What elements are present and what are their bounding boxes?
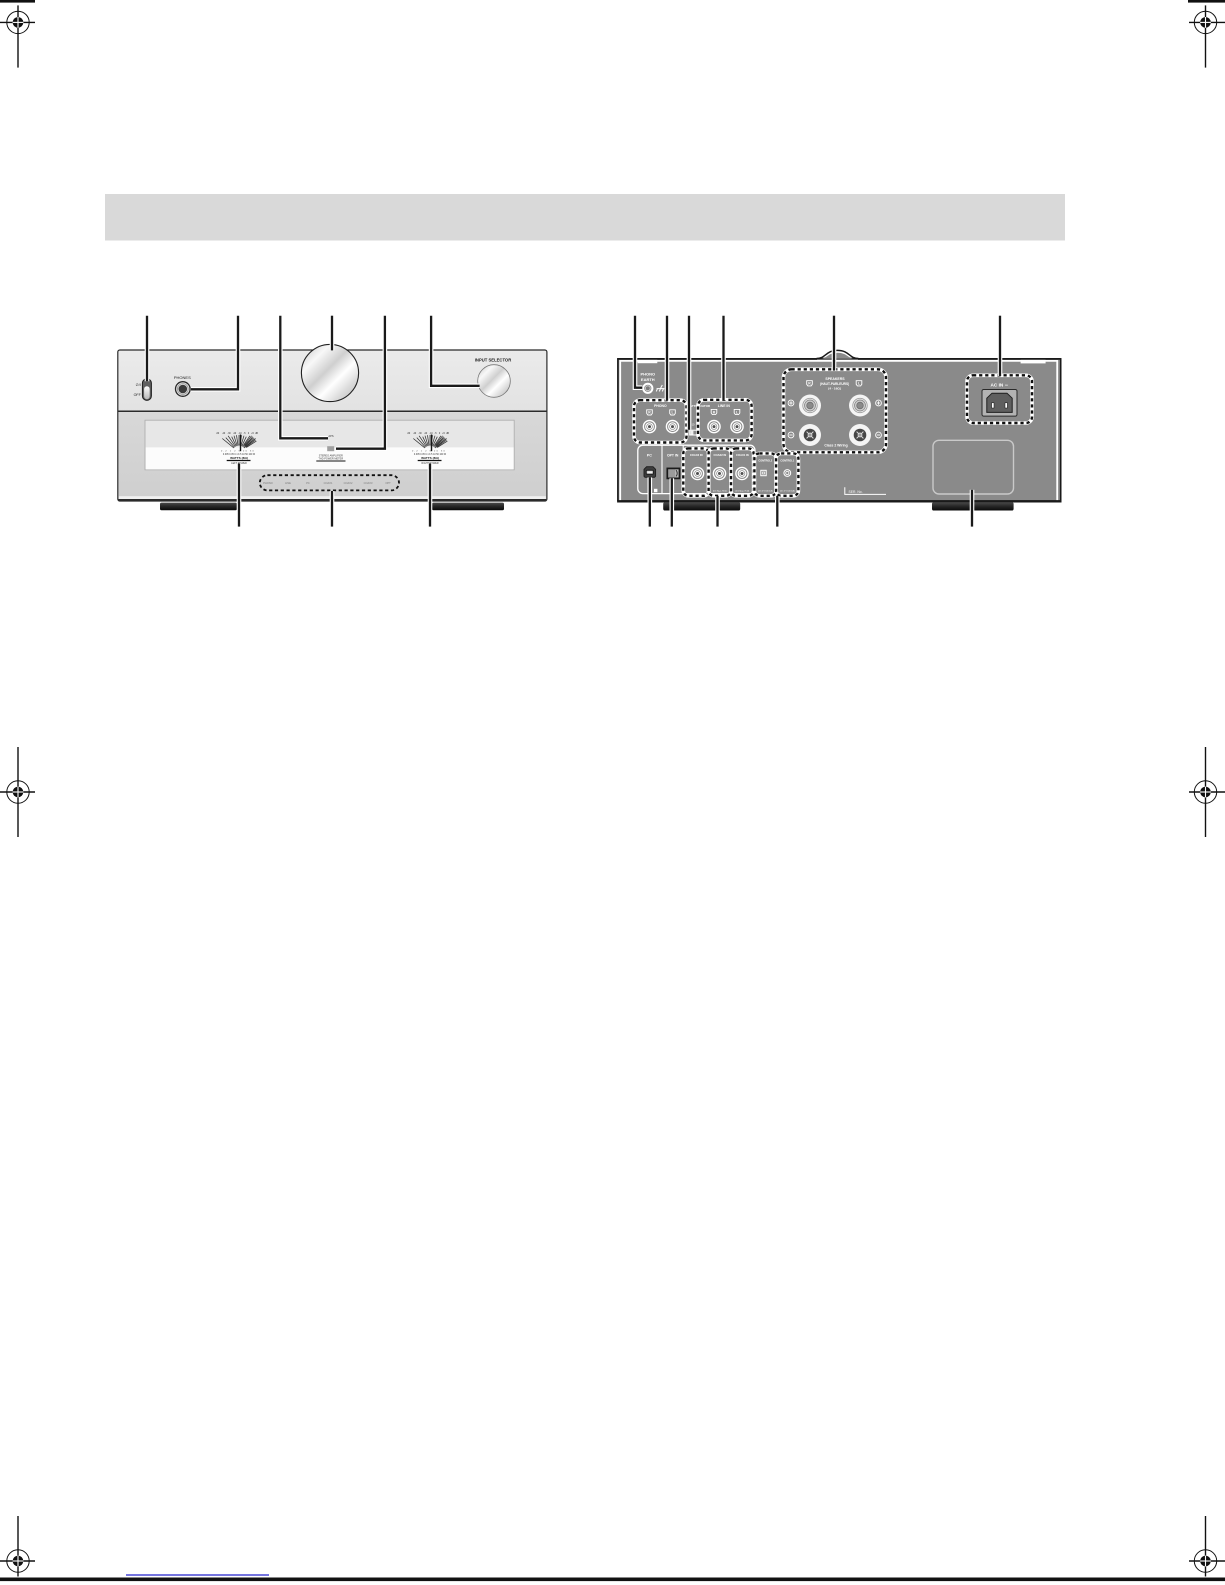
svg-text:EARTH: EARTH bbox=[641, 377, 655, 382]
svg-text:WATTS (8Ω): WATTS (8Ω) bbox=[230, 456, 248, 460]
svg-text:OFF: OFF bbox=[134, 393, 142, 397]
svg-text:WATTS (8Ω): WATTS (8Ω) bbox=[421, 456, 439, 460]
svg-text:[4 - 16Ω]: [4 - 16Ω] bbox=[828, 386, 840, 390]
svg-text:ATTENUATOR: ATTENUATOR bbox=[690, 404, 711, 408]
svg-text:0.2 1 2 5 20 50: 0.2 1 2 5 20 50 bbox=[221, 450, 255, 452]
svg-text:(0.5 Vp-p, 75 Ω): (0.5 Vp-p, 75 Ω) bbox=[736, 491, 750, 493]
svg-text:L: L bbox=[671, 411, 673, 415]
svg-text:PHONO: PHONO bbox=[640, 372, 655, 377]
svg-text:SER. No.: SER. No. bbox=[849, 490, 863, 494]
svg-text:OPT IN: OPT IN bbox=[667, 454, 679, 458]
svg-text:(DC 5 V 100 mA): (DC 5 V 100 mA) bbox=[780, 490, 795, 493]
svg-text:SPEAKERS: SPEAKERS bbox=[825, 377, 845, 381]
svg-text:INPUT SELECTOR: INPUT SELECTOR bbox=[475, 357, 511, 362]
svg-text:(0.5 Vp-p, 75 Ω): (0.5 Vp-p, 75 Ω) bbox=[713, 491, 727, 493]
svg-text:COAX1: COAX1 bbox=[324, 481, 333, 485]
svg-text:PC: PC bbox=[306, 481, 310, 485]
svg-text:AC IN ∼: AC IN ∼ bbox=[991, 383, 1009, 388]
svg-text:APS: APS bbox=[328, 434, 333, 438]
svg-text:Class 2 Wiring: Class 2 Wiring bbox=[824, 443, 847, 447]
svg-text:L: L bbox=[736, 410, 738, 414]
svg-text:COAX3 IN: COAX3 IN bbox=[690, 453, 703, 457]
svg-text:THD POWER METER: THD POWER METER bbox=[318, 458, 343, 461]
svg-text:COAX2 IN: COAX2 IN bbox=[714, 453, 727, 457]
svg-text:CONTROL2: CONTROL2 bbox=[758, 459, 772, 462]
svg-text:COAX2: COAX2 bbox=[344, 481, 353, 485]
svg-text:(HAUT-PARLEURS): (HAUT-PARLEURS) bbox=[820, 382, 849, 386]
svg-text:COAX1 IN: COAX1 IN bbox=[736, 453, 749, 457]
svg-text:(DC 5 V 100 mA): (DC 5 V 100 mA) bbox=[758, 490, 773, 493]
svg-text:OPT: OPT bbox=[385, 481, 391, 485]
svg-text:CONTROL1: CONTROL1 bbox=[780, 459, 794, 462]
svg-text:L: L bbox=[858, 382, 860, 386]
svg-text:PC: PC bbox=[647, 454, 652, 458]
svg-text:PHONES: PHONES bbox=[174, 375, 191, 380]
svg-text:LINE: LINE bbox=[285, 481, 291, 485]
svg-text:∅/I: ∅/I bbox=[136, 383, 141, 387]
svg-text:LINE IN: LINE IN bbox=[718, 404, 731, 408]
svg-text:dB: dB bbox=[446, 433, 449, 435]
svg-text:PHONO: PHONO bbox=[654, 404, 667, 408]
svg-text:dB: dB bbox=[255, 433, 258, 435]
svg-text:0.2 1 2 5 20 50: 0.2 1 2 5 20 50 bbox=[412, 450, 446, 452]
svg-text:PHONO: PHONO bbox=[263, 481, 273, 485]
svg-text:COAX3: COAX3 bbox=[364, 481, 373, 485]
